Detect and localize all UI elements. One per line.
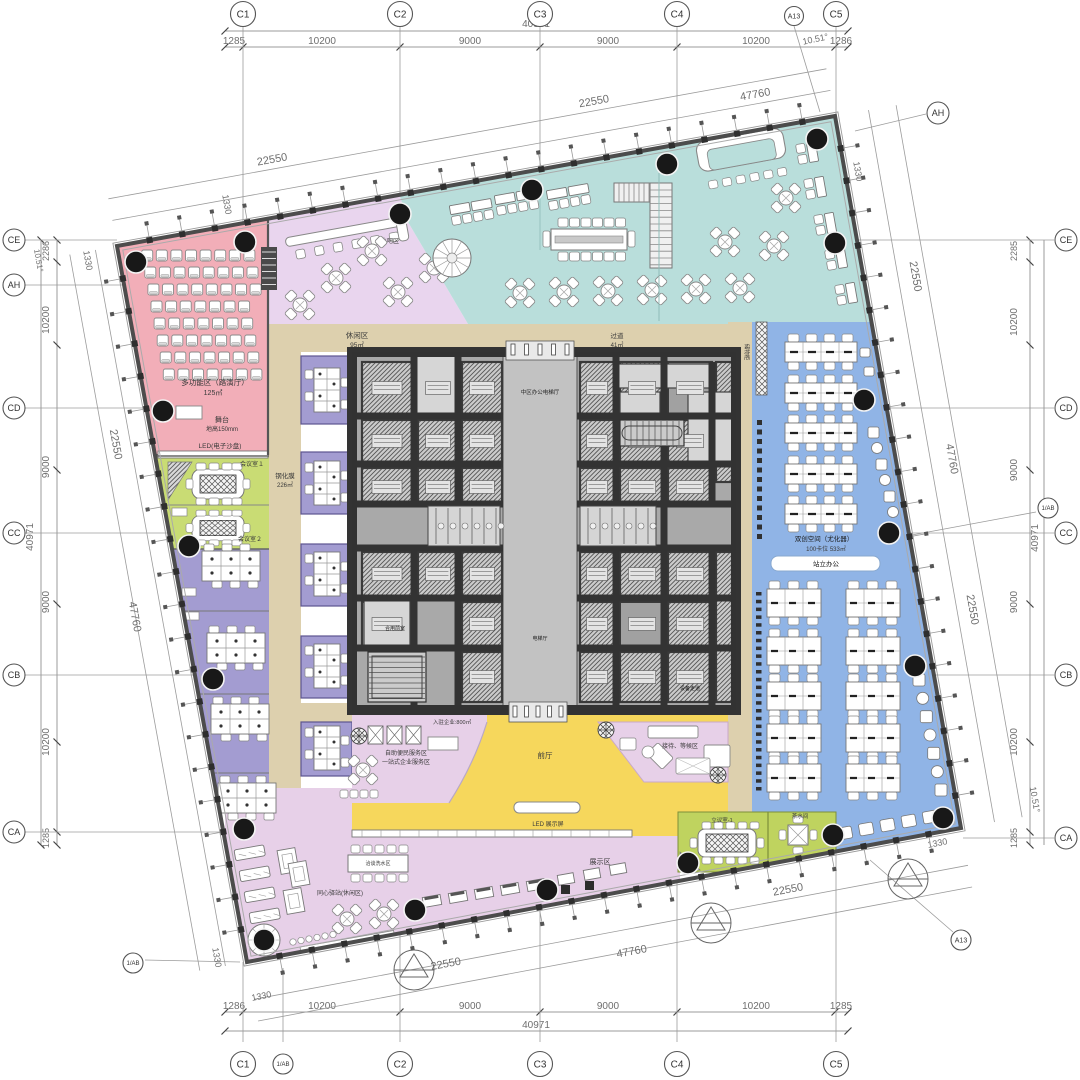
svg-text:过道: 过道	[611, 331, 625, 340]
svg-text:LED(电子沙盘): LED(电子沙盘)	[199, 441, 242, 450]
svg-text:1285: 1285	[830, 1001, 853, 1012]
svg-text:C5: C5	[830, 10, 843, 21]
svg-text:自助便民服务区: 自助便民服务区	[385, 749, 427, 757]
svg-text:会议室１: 会议室１	[240, 460, 264, 468]
svg-text:C4: C4	[671, 10, 684, 21]
svg-text:CB: CB	[8, 670, 21, 680]
svg-text:C4: C4	[671, 1060, 684, 1071]
svg-text:9000: 9000	[1009, 458, 1020, 481]
svg-text:AH: AH	[8, 280, 21, 290]
svg-text:9000: 9000	[41, 590, 52, 613]
svg-text:40971: 40971	[1030, 524, 1041, 552]
svg-text:CE: CE	[8, 235, 21, 245]
svg-text:10200: 10200	[742, 36, 770, 47]
svg-text:10200: 10200	[308, 36, 336, 47]
svg-text:9000: 9000	[459, 36, 482, 47]
svg-text:2285: 2285	[1009, 241, 1019, 261]
svg-text:展示区: 展示区	[590, 858, 611, 866]
svg-text:CD: CD	[8, 403, 21, 413]
svg-text:A13: A13	[955, 938, 968, 945]
svg-text:CA: CA	[1060, 833, 1073, 843]
svg-text:A13: A13	[788, 14, 801, 21]
svg-text:双创空间（尤化器）: 双创空间（尤化器）	[795, 534, 854, 543]
svg-text:9000: 9000	[597, 36, 620, 47]
svg-text:电梯厅: 电梯厅	[532, 635, 547, 642]
svg-text:CC: CC	[8, 528, 21, 538]
svg-text:CA: CA	[8, 827, 21, 837]
svg-text:舞台: 舞台	[215, 415, 229, 424]
svg-text:前厅: 前厅	[538, 750, 553, 760]
svg-text:10200: 10200	[308, 1001, 336, 1012]
svg-text:AH: AH	[932, 108, 945, 118]
svg-text:40971: 40971	[522, 1020, 550, 1031]
svg-text:储物柜: 储物柜	[743, 344, 751, 361]
svg-text:C1: C1	[237, 10, 250, 21]
svg-text:立议室-1: 立议室-1	[711, 816, 732, 824]
svg-text:休闲区: 休闲区	[346, 330, 369, 340]
svg-text:10200: 10200	[742, 1001, 770, 1012]
svg-text:9000: 9000	[597, 1001, 620, 1012]
svg-text:会议室２: 会议室２	[238, 535, 262, 543]
svg-text:C2: C2	[394, 1060, 407, 1071]
svg-text:1/AB: 1/AB	[1041, 506, 1054, 512]
svg-text:1286: 1286	[830, 36, 853, 47]
svg-text:1/AB: 1/AB	[126, 961, 139, 967]
svg-text:1285: 1285	[223, 36, 246, 47]
svg-text:1285: 1285	[41, 828, 51, 848]
svg-text:CC: CC	[1060, 528, 1073, 538]
svg-text:接待、等候区: 接待、等候区	[662, 742, 698, 750]
svg-text:1/AB: 1/AB	[276, 1062, 289, 1068]
svg-text:合用前室: 合用前室	[385, 625, 405, 632]
svg-text:站立办公: 站立办公	[813, 559, 840, 568]
svg-text:LED 展示屏: LED 展示屏	[532, 821, 563, 828]
svg-text:C5: C5	[830, 1060, 843, 1071]
svg-text:茶水间: 茶水间	[792, 812, 809, 820]
svg-text:9000: 9000	[1009, 590, 1020, 613]
svg-text:125㎡: 125㎡	[204, 389, 223, 397]
svg-text:9000: 9000	[41, 455, 52, 478]
svg-text:C1: C1	[237, 1060, 250, 1071]
svg-text:9000: 9000	[459, 1001, 482, 1012]
svg-text:CB: CB	[1060, 670, 1073, 680]
svg-text:入驻企业:800㎡: 入驻企业:800㎡	[433, 718, 472, 726]
svg-text:1286: 1286	[223, 1001, 246, 1012]
svg-text:C3: C3	[534, 1060, 547, 1071]
svg-text:100卡位 533㎡: 100卡位 533㎡	[806, 545, 846, 553]
svg-text:CD: CD	[1060, 403, 1073, 413]
svg-text:多功能区（路演厅）: 多功能区（路演厅）	[181, 377, 249, 387]
svg-text:CE: CE	[1060, 235, 1073, 245]
svg-text:226㎡: 226㎡	[277, 481, 293, 489]
svg-text:一站式企业服务区: 一站式企业服务区	[382, 758, 430, 766]
svg-text:同心驿站(休闲区): 同心驿站(休闲区)	[317, 889, 363, 897]
svg-text:中区办公电梯厅: 中区办公电梯厅	[521, 388, 560, 396]
svg-text:地高150mm: 地高150mm	[206, 425, 238, 433]
svg-text:10200: 10200	[1009, 308, 1020, 336]
svg-text:10200: 10200	[41, 728, 52, 756]
svg-text:C3: C3	[534, 10, 547, 21]
svg-text:C2: C2	[394, 10, 407, 21]
svg-text:钢化膜: 钢化膜	[275, 471, 295, 480]
svg-text:洽谈洗水区: 洽谈洗水区	[365, 860, 390, 867]
svg-text:10200: 10200	[41, 306, 52, 334]
svg-text:40971: 40971	[25, 523, 36, 551]
svg-text:设备走道: 设备走道	[680, 685, 700, 692]
